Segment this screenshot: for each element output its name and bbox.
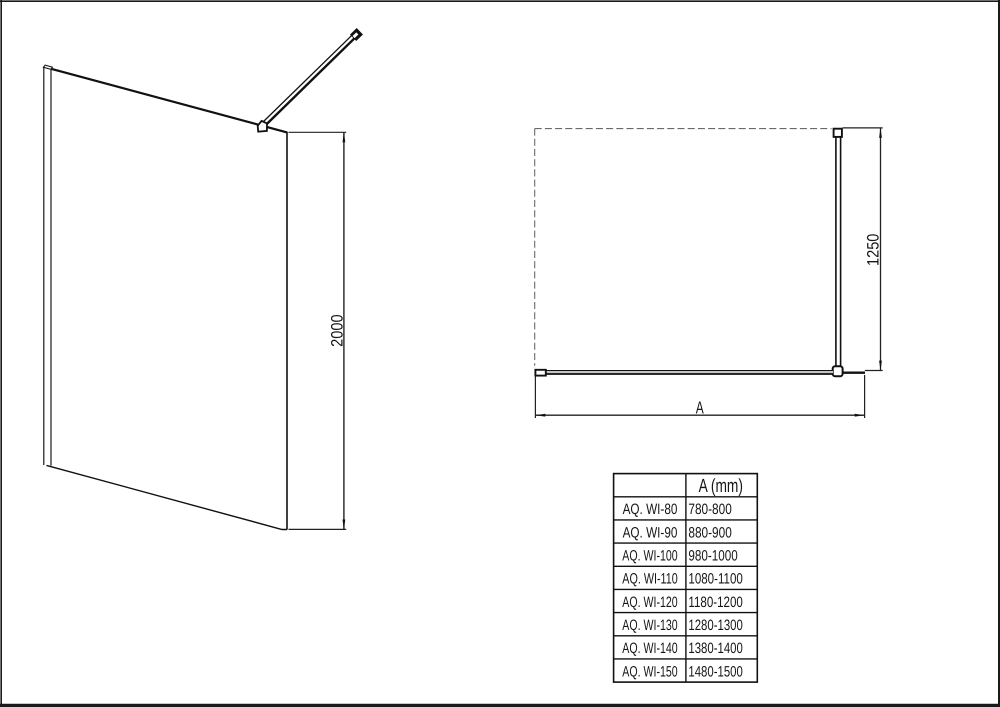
svg-text:1250: 1250	[865, 234, 883, 266]
svg-text:AQ. WI-110: AQ. WI-110	[622, 571, 677, 588]
svg-text:1180-1200: 1180-1200	[688, 594, 742, 611]
svg-text:1380-1400: 1380-1400	[688, 640, 742, 657]
svg-text:2000: 2000	[329, 314, 347, 347]
svg-text:AQ. WI-120: AQ. WI-120	[622, 594, 677, 611]
svg-text:AQ. WI-130: AQ. WI-130	[622, 617, 677, 634]
svg-text:1080-1100: 1080-1100	[688, 571, 742, 588]
svg-text:880-900: 880-900	[688, 524, 731, 541]
svg-text:A: A	[696, 398, 704, 418]
svg-text:1480-1500: 1480-1500	[688, 663, 742, 680]
svg-text:AQ. WI-140: AQ. WI-140	[622, 640, 677, 657]
svg-text:AQ. WI-80: AQ. WI-80	[623, 501, 678, 518]
svg-text:AQ. WI-90: AQ. WI-90	[623, 524, 678, 541]
svg-text:780-800: 780-800	[688, 501, 731, 518]
svg-text:980-1000: 980-1000	[688, 548, 737, 565]
svg-text:AQ. WI-150: AQ. WI-150	[622, 663, 677, 680]
svg-text:AQ. WI-100: AQ. WI-100	[622, 548, 677, 565]
svg-text:1280-1300: 1280-1300	[688, 617, 742, 634]
svg-text:A (mm): A (mm)	[699, 476, 743, 497]
